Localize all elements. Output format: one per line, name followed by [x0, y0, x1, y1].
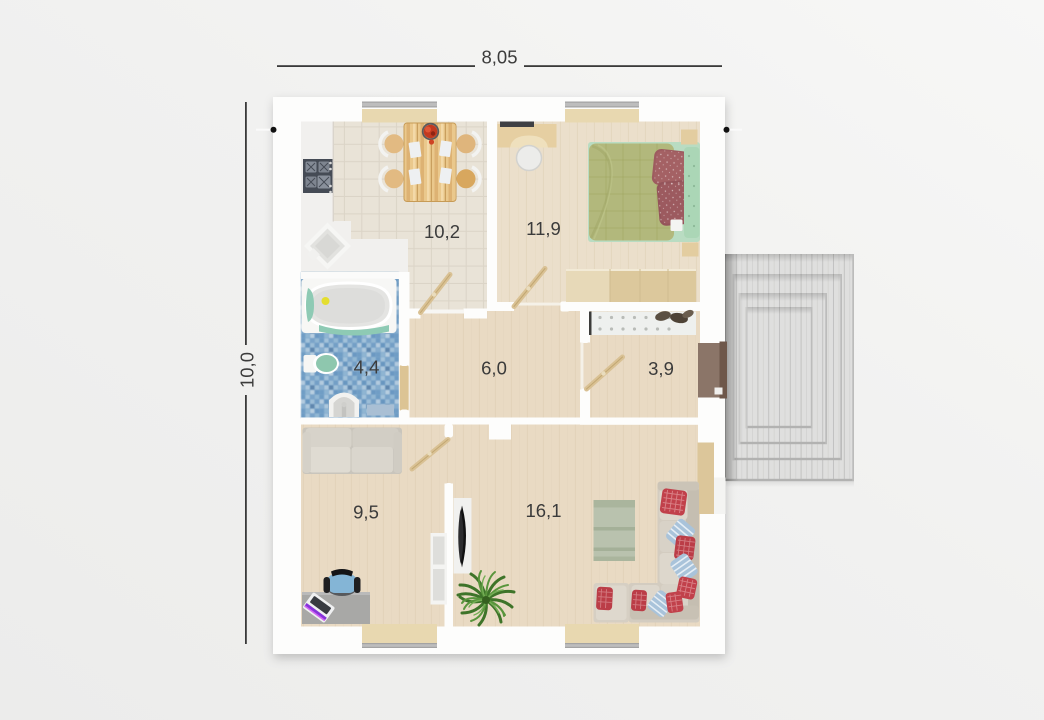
svg-text:16,1: 16,1	[525, 500, 561, 521]
svg-text:8,05: 8,05	[481, 47, 517, 68]
svg-text:4,4: 4,4	[354, 357, 380, 378]
svg-text:10,2: 10,2	[424, 221, 460, 242]
svg-text:9,5: 9,5	[353, 502, 379, 523]
svg-text:10,0: 10,0	[237, 352, 258, 388]
svg-text:6,0: 6,0	[481, 358, 507, 379]
svg-text:11,9: 11,9	[526, 218, 561, 239]
svg-text:3,9: 3,9	[648, 358, 674, 379]
